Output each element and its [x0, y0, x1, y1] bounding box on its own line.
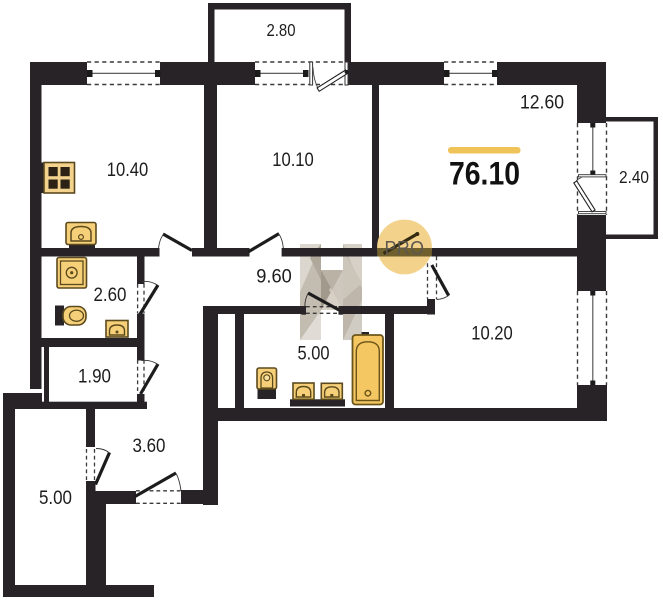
svg-text:10.40: 10.40: [107, 160, 149, 181]
svg-text:3.60: 3.60: [133, 436, 166, 457]
svg-text:5.00: 5.00: [39, 488, 72, 509]
svg-text:2.40: 2.40: [619, 167, 649, 187]
svg-text:12.60: 12.60: [520, 93, 564, 114]
svg-text:10.10: 10.10: [272, 150, 314, 171]
svg-text:1.90: 1.90: [78, 367, 111, 388]
svg-text:5.00: 5.00: [298, 344, 330, 365]
svg-text:10.20: 10.20: [471, 324, 513, 345]
svg-text:PRO: PRO: [385, 239, 425, 260]
svg-text:9.60: 9.60: [256, 267, 292, 288]
svg-text:2.60: 2.60: [94, 285, 127, 306]
svg-text:76.10: 76.10: [449, 156, 520, 192]
svg-text:2.80: 2.80: [267, 20, 296, 40]
